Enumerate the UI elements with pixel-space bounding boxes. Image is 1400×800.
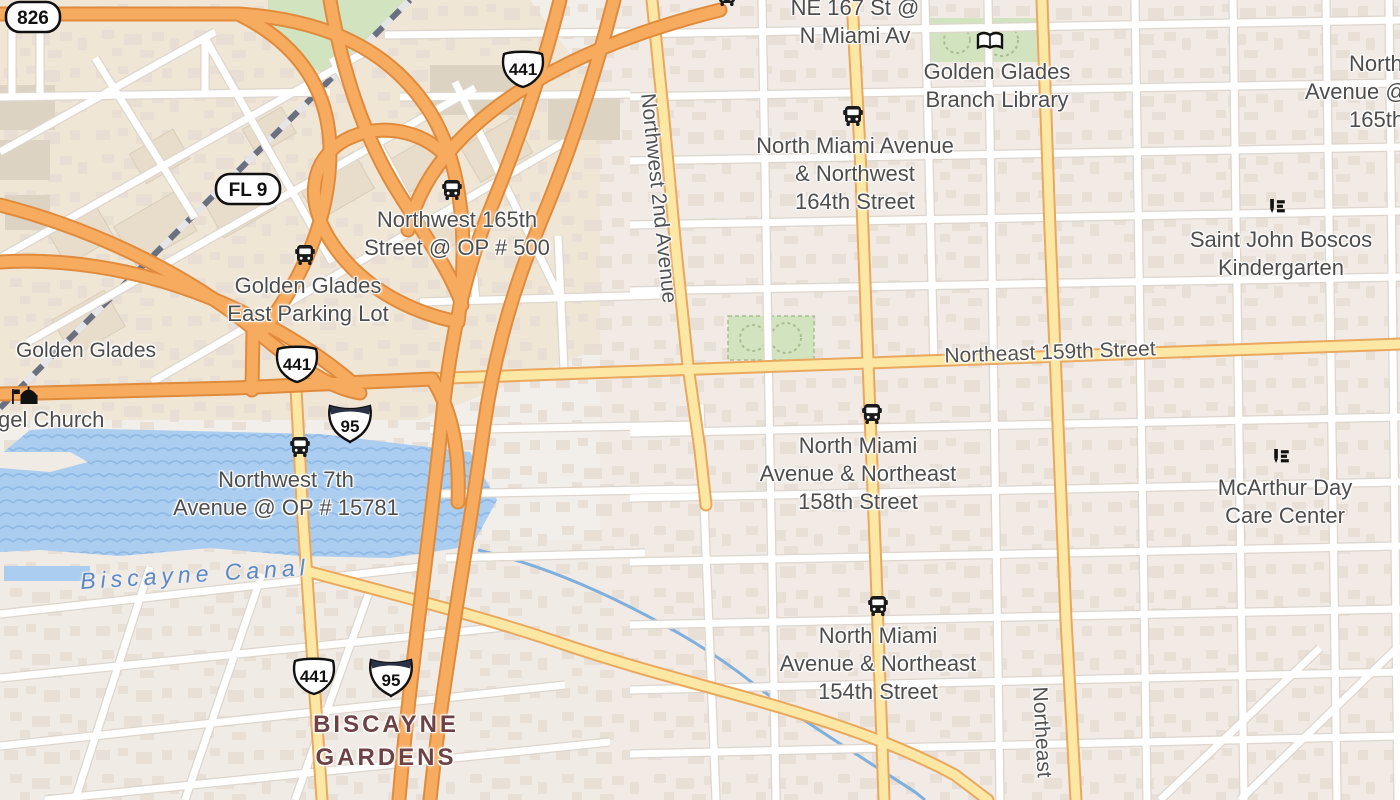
shield-fl9-label: FL 9 (229, 180, 268, 201)
poi-label-kindergarten: Saint John Boscos Kindergarten (1190, 226, 1372, 282)
busstop-label-nw7: Northwest 7th Avenue @ OP # 15781 (173, 466, 399, 522)
busstop-label-ne167: NE 167 St @ N Miami Av (791, 0, 920, 50)
poi-label-daycare: McArthur Day Care Center (1218, 474, 1352, 530)
busstop-label-154th: North Miami Avenue & Northeast 154th Str… (780, 622, 977, 706)
place-label-golden-glades: Golden Glades (16, 338, 156, 365)
shield-fl9: FL 9 (216, 174, 280, 204)
busstop-label-164th: North Miami Avenue & Northwest 164th Str… (756, 132, 954, 216)
shield-826: 826 (6, 2, 60, 32)
road-label-northeast-ave: Northeast (1025, 686, 1057, 778)
busstop-label-158th: North Miami Avenue & Northeast 158th Str… (760, 432, 957, 516)
map-canvas[interactable]: 826 FL 9 441 441 441 95 95 NE 167 (0, 0, 1400, 800)
library-icon (978, 33, 1002, 48)
busstop-label-nw165: Northwest 165th Street @ OP # 500 (364, 206, 550, 262)
shield-i95-label: 95 (341, 417, 360, 436)
shield-826-label: 826 (17, 8, 49, 29)
place-label-biscayne-gardens: BISCAYNE GARDENS (313, 708, 459, 774)
poi-label-parking-lot: Golden Glades East Parking Lot (227, 272, 388, 328)
poi-label-church: gel Church (0, 406, 104, 434)
shield-us441-label: 441 (300, 667, 328, 686)
shield-us441-label: 441 (509, 60, 537, 79)
shield-us441-label: 441 (283, 355, 311, 374)
map-graphics: 826 FL 9 441 441 441 95 95 (0, 0, 1400, 800)
busstop-label-edge-ne165: North Avenue @ 165th (1305, 50, 1400, 134)
shield-i95-label: 95 (382, 671, 401, 690)
childcare-icon (1274, 449, 1289, 463)
childcare-icon (1270, 199, 1285, 213)
poi-label-library: Golden Glades Branch Library (924, 58, 1071, 114)
